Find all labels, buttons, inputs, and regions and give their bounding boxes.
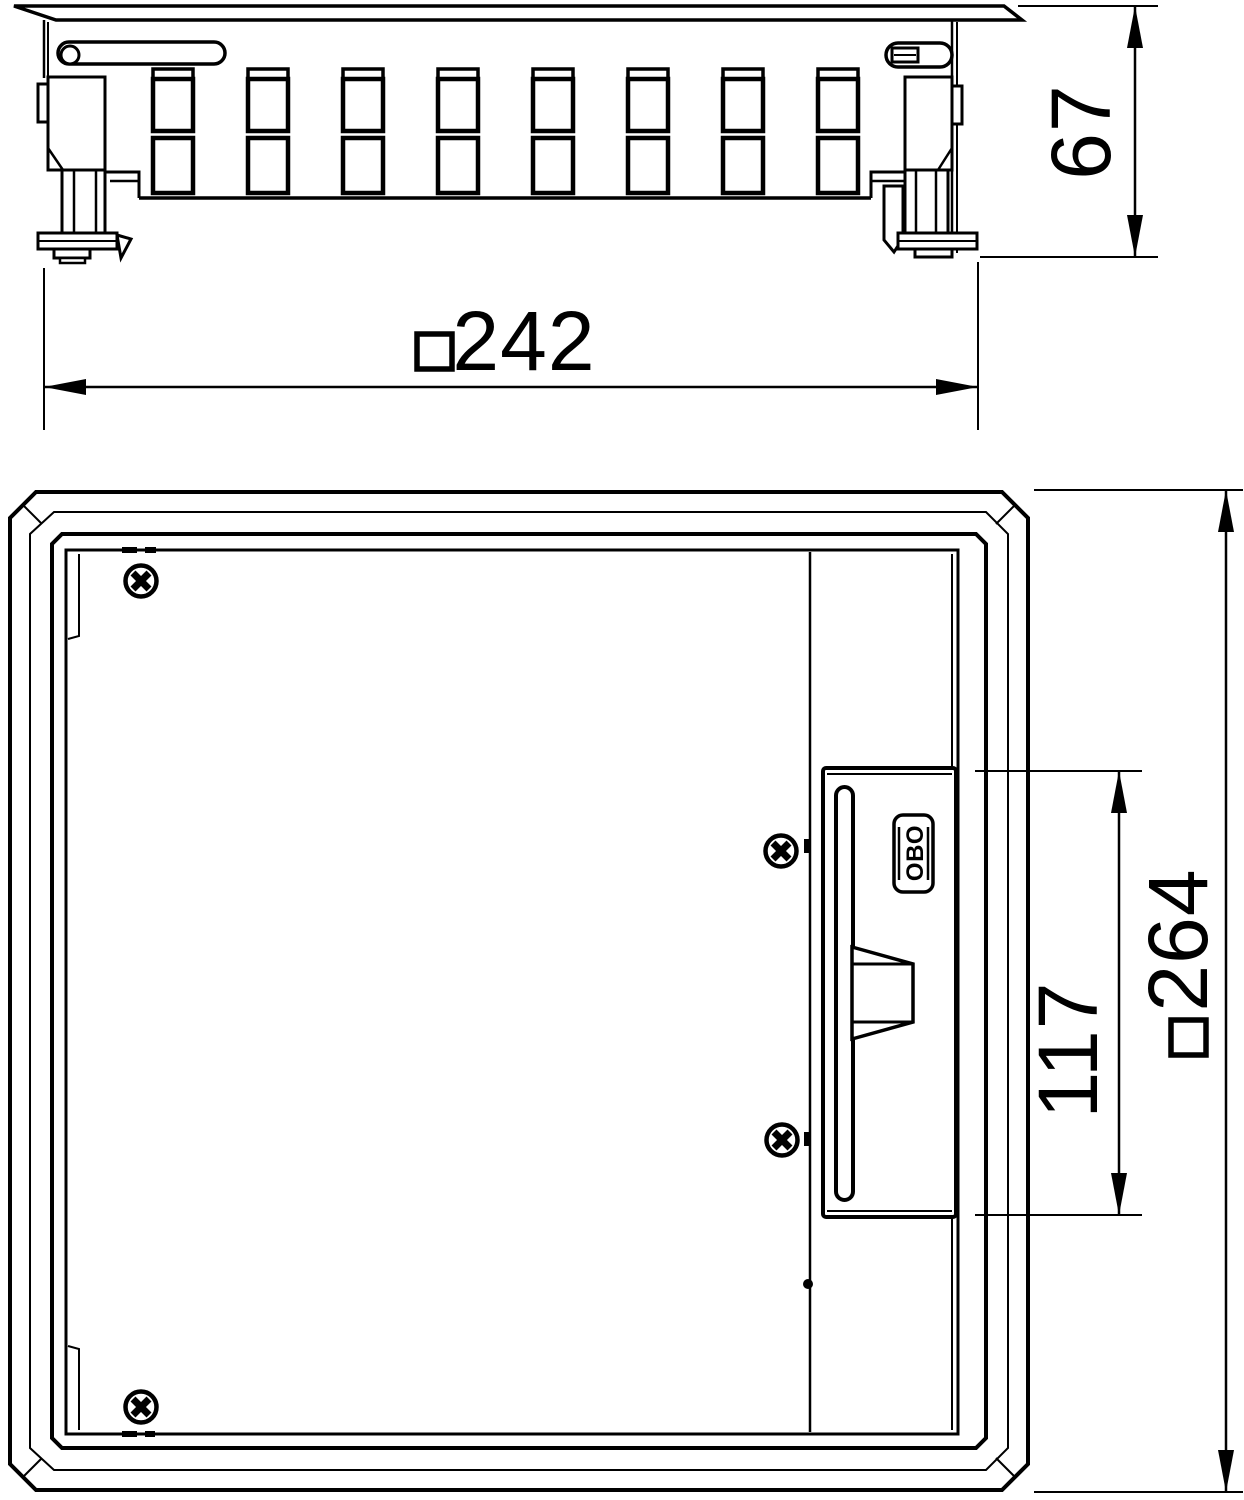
- slot-column: [343, 69, 383, 193]
- handle-module: OBO: [823, 768, 956, 1217]
- cover-plate: [14, 6, 1022, 20]
- claw-pad-small: [60, 258, 85, 263]
- square-symbol: [417, 334, 452, 369]
- square-symbol: [1171, 1020, 1206, 1055]
- lever-arm: [58, 42, 225, 64]
- left-mounting-claw: [38, 77, 139, 263]
- dimension-label-242: 242: [452, 294, 595, 388]
- ventilation-slots: [153, 69, 858, 193]
- claw-tab: [952, 86, 962, 124]
- locking-lever-left: [58, 42, 225, 64]
- claw-lower-body: [62, 170, 105, 233]
- plan-view: OBO 117: [10, 490, 1243, 1492]
- claw-body: [905, 77, 952, 170]
- technical-drawing-canvas: 67 242: [0, 0, 1244, 1500]
- phillips-screw: [126, 1392, 157, 1423]
- dimension-label-264: 264: [1131, 868, 1225, 1011]
- claw-lower-body: [905, 170, 948, 233]
- claw-step: [105, 172, 139, 198]
- tick-mark: [145, 1431, 155, 1437]
- claw-tip: [117, 235, 131, 258]
- side-elevation-view: 67 242: [14, 6, 1158, 430]
- slot-column: [818, 69, 858, 193]
- latch-handle: [852, 947, 913, 1039]
- dimension-width-242: 242: [44, 262, 978, 430]
- dimension-label-67: 67: [1034, 84, 1128, 179]
- slot-column: [533, 69, 573, 193]
- slot-column: [628, 69, 668, 193]
- tick-mark: [145, 547, 156, 553]
- claw-pad: [915, 249, 952, 257]
- phillips-screw: [767, 1125, 798, 1156]
- tick-mark: [804, 1132, 811, 1146]
- arrowhead-up: [1127, 6, 1143, 48]
- tick-mark: [122, 1431, 137, 1437]
- arrowhead-down: [1111, 1173, 1127, 1215]
- right-mounting-claw: [884, 77, 977, 257]
- obo-logo-plate: OBO: [894, 815, 933, 892]
- phillips-screw: [126, 566, 157, 597]
- technical-drawing-page: 67 242: [0, 0, 1244, 1500]
- obo-logo-text: OBO: [902, 825, 929, 881]
- lever-pivot: [61, 46, 79, 64]
- latch-outline: [852, 947, 913, 1039]
- claw-tab: [38, 84, 48, 122]
- arrowhead-down: [1218, 1450, 1234, 1492]
- phillips-screw: [766, 836, 797, 867]
- claw-pad: [54, 249, 90, 258]
- dimension-label-117: 117: [1021, 982, 1115, 1119]
- arrowhead-left: [44, 379, 86, 395]
- slot-column: [153, 69, 193, 193]
- slot-column: [438, 69, 478, 193]
- tick-mark: [804, 839, 811, 853]
- arrowhead-right: [936, 379, 978, 395]
- slot-column: [248, 69, 288, 193]
- pivot-nub: [803, 1279, 813, 1289]
- tick-mark: [122, 547, 137, 553]
- arrowhead-up: [1218, 490, 1234, 532]
- claw-body: [48, 77, 105, 170]
- arrowhead-down: [1127, 215, 1143, 257]
- slot-column: [723, 69, 763, 193]
- arrowhead-up: [1111, 771, 1127, 813]
- dimension-height-67: 67: [980, 6, 1158, 257]
- locking-lever-right: [886, 43, 952, 67]
